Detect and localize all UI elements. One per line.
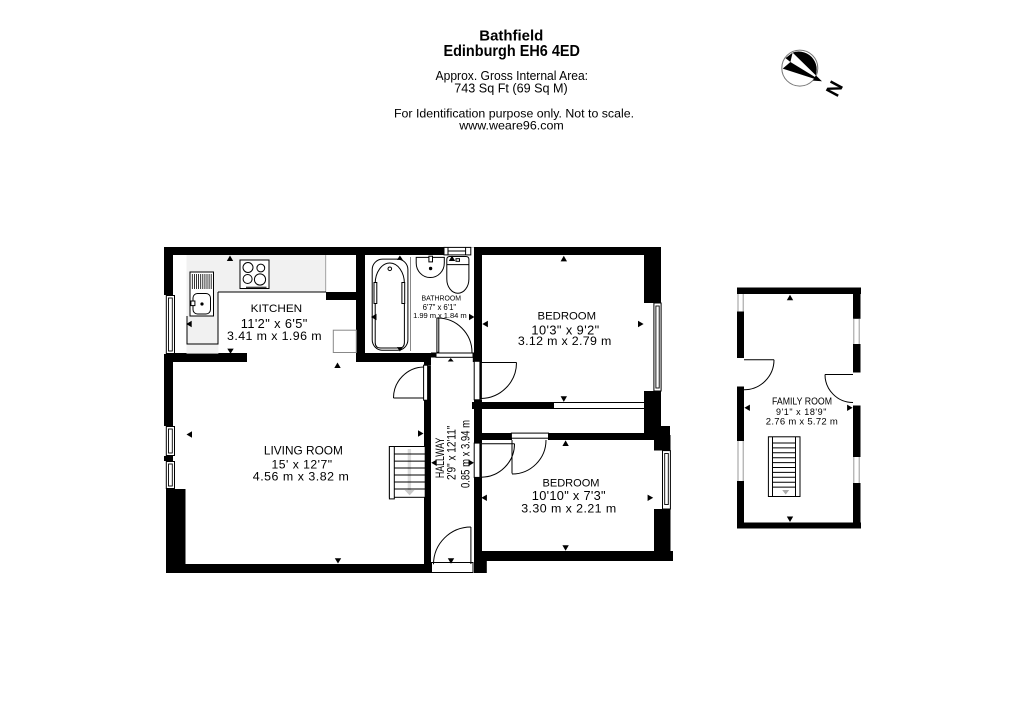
svg-text:0.85 m x 3.94 m: 0.85 m x 3.94 m <box>459 420 473 488</box>
svg-text:www.weare96.com: www.weare96.com <box>458 119 564 133</box>
svg-text:743 Sq Ft (69 Sq M): 743 Sq Ft (69 Sq M) <box>454 81 568 96</box>
svg-text:4.56 m x 3.82 m: 4.56 m x 3.82 m <box>253 469 349 483</box>
svg-text:BEDROOM: BEDROOM <box>538 311 597 323</box>
svg-text:Bathfield: Bathfield <box>479 27 543 44</box>
svg-text:LIVING ROOM: LIVING ROOM <box>264 444 343 458</box>
svg-text:KITCHEN: KITCHEN <box>251 303 303 315</box>
svg-text:3.30 m x 2.21 m: 3.30 m x 2.21 m <box>521 501 616 515</box>
svg-text:BATHROOM: BATHROOM <box>422 296 462 303</box>
svg-text:2'9" x 12'11": 2'9" x 12'11" <box>444 426 458 481</box>
svg-text:3.12 m x 2.79 m: 3.12 m x 2.79 m <box>518 334 612 348</box>
svg-text:2.76 m x 5.72 m: 2.76 m x 5.72 m <box>766 417 838 428</box>
svg-text:Edinburgh EH6 4ED: Edinburgh EH6 4ED <box>443 43 580 60</box>
svg-text:3.41 m x 1.96 m: 3.41 m x 1.96 m <box>227 329 322 343</box>
svg-text:FAMILY ROOM: FAMILY ROOM <box>772 396 832 407</box>
svg-text:9'1" x 18'9": 9'1" x 18'9" <box>776 407 827 417</box>
svg-text:1.99 m x 1.84 m: 1.99 m x 1.84 m <box>413 311 467 320</box>
